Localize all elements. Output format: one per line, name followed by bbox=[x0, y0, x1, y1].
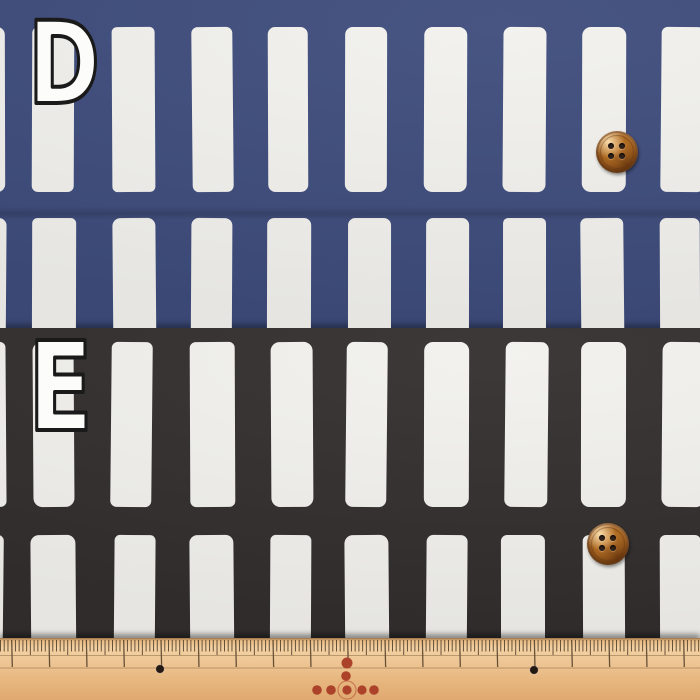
button-hole bbox=[610, 535, 616, 541]
button-hole bbox=[599, 545, 605, 551]
cm-tick bbox=[161, 640, 162, 667]
wooden-ruler bbox=[0, 638, 700, 700]
red-dot bbox=[342, 685, 351, 694]
fabric-stripe bbox=[424, 342, 469, 507]
fabric-stripe bbox=[111, 27, 155, 192]
cm-tick bbox=[86, 640, 87, 667]
button-hole bbox=[608, 143, 614, 149]
cm-tick bbox=[49, 640, 50, 667]
cm-tick bbox=[534, 640, 535, 667]
fabric-stripe bbox=[113, 535, 155, 638]
red-dot bbox=[369, 685, 379, 695]
swatch-label-e-lettering: E bbox=[0, 328, 180, 453]
cm-tick bbox=[273, 640, 274, 667]
red-dot bbox=[357, 685, 366, 694]
cm-tick bbox=[684, 640, 685, 667]
wooden-button bbox=[596, 131, 638, 173]
fabric-stripe bbox=[32, 27, 75, 192]
fabric-stripe bbox=[0, 342, 7, 507]
cm-tick bbox=[198, 640, 199, 667]
red-dot bbox=[312, 685, 322, 695]
fabric-stripe bbox=[191, 218, 232, 328]
cm-tick bbox=[572, 640, 573, 667]
fabric-stripe bbox=[659, 535, 700, 638]
fabric-stripe bbox=[504, 342, 549, 507]
button-hole bbox=[608, 153, 614, 159]
fabric-stripe bbox=[33, 342, 75, 507]
button-hole bbox=[610, 545, 616, 551]
cm-tick bbox=[236, 640, 237, 667]
cm-tick bbox=[609, 640, 610, 667]
fabric-swatch-e: E bbox=[0, 328, 700, 638]
fabric-stripe bbox=[661, 27, 700, 192]
fabric-stripe bbox=[189, 342, 234, 507]
fabric-stripe bbox=[503, 218, 546, 328]
fabric-stripe bbox=[424, 27, 468, 192]
fabric-swatch-d: D bbox=[0, 0, 700, 328]
button-hole bbox=[599, 535, 605, 541]
button-hole bbox=[619, 153, 625, 159]
cm-tick bbox=[422, 640, 423, 667]
fabric-stripe bbox=[661, 342, 700, 507]
button-hole bbox=[619, 143, 625, 149]
fabric-stripe bbox=[503, 27, 547, 192]
ruler-scale-marks bbox=[0, 638, 700, 700]
cm-tick bbox=[646, 640, 647, 667]
fabric-stripe bbox=[268, 27, 309, 192]
fabric-stripe bbox=[581, 218, 625, 328]
fabric-stripe bbox=[581, 342, 626, 507]
cm-tick bbox=[497, 640, 498, 667]
fabric-stripe bbox=[345, 342, 388, 507]
fabric-stripe bbox=[191, 27, 234, 192]
fabric-stripe bbox=[345, 27, 387, 192]
cm-tick bbox=[310, 640, 311, 667]
cm-tick bbox=[124, 640, 125, 667]
fabric-stripe bbox=[113, 218, 157, 328]
fabric-stripe bbox=[31, 535, 77, 638]
red-dot bbox=[342, 658, 353, 669]
fabric-stripe bbox=[270, 342, 312, 507]
cm-tick bbox=[385, 640, 386, 667]
fabric-stripe bbox=[348, 218, 391, 328]
fabric-stripe bbox=[32, 218, 77, 328]
wooden-button bbox=[587, 523, 629, 565]
fabric-stripe bbox=[425, 535, 467, 638]
red-dot bbox=[326, 685, 336, 695]
fabric-stripe bbox=[0, 27, 6, 192]
fabric-stripe bbox=[345, 535, 390, 638]
red-dot bbox=[341, 671, 351, 681]
fabric-stripe bbox=[0, 535, 3, 638]
fabric-stripe bbox=[0, 218, 7, 328]
fabric-stripe bbox=[425, 218, 468, 328]
cm-tick bbox=[460, 640, 461, 667]
fabric-stripe bbox=[267, 218, 311, 328]
fabric-stripe bbox=[110, 342, 153, 507]
fabric-stripe bbox=[189, 535, 235, 638]
fabric-stripe bbox=[501, 535, 546, 638]
fabric-product-photo: D E bbox=[0, 0, 700, 700]
fabric-stripe bbox=[660, 218, 700, 328]
fabric-stripe bbox=[270, 535, 311, 638]
cm-tick bbox=[12, 640, 13, 667]
